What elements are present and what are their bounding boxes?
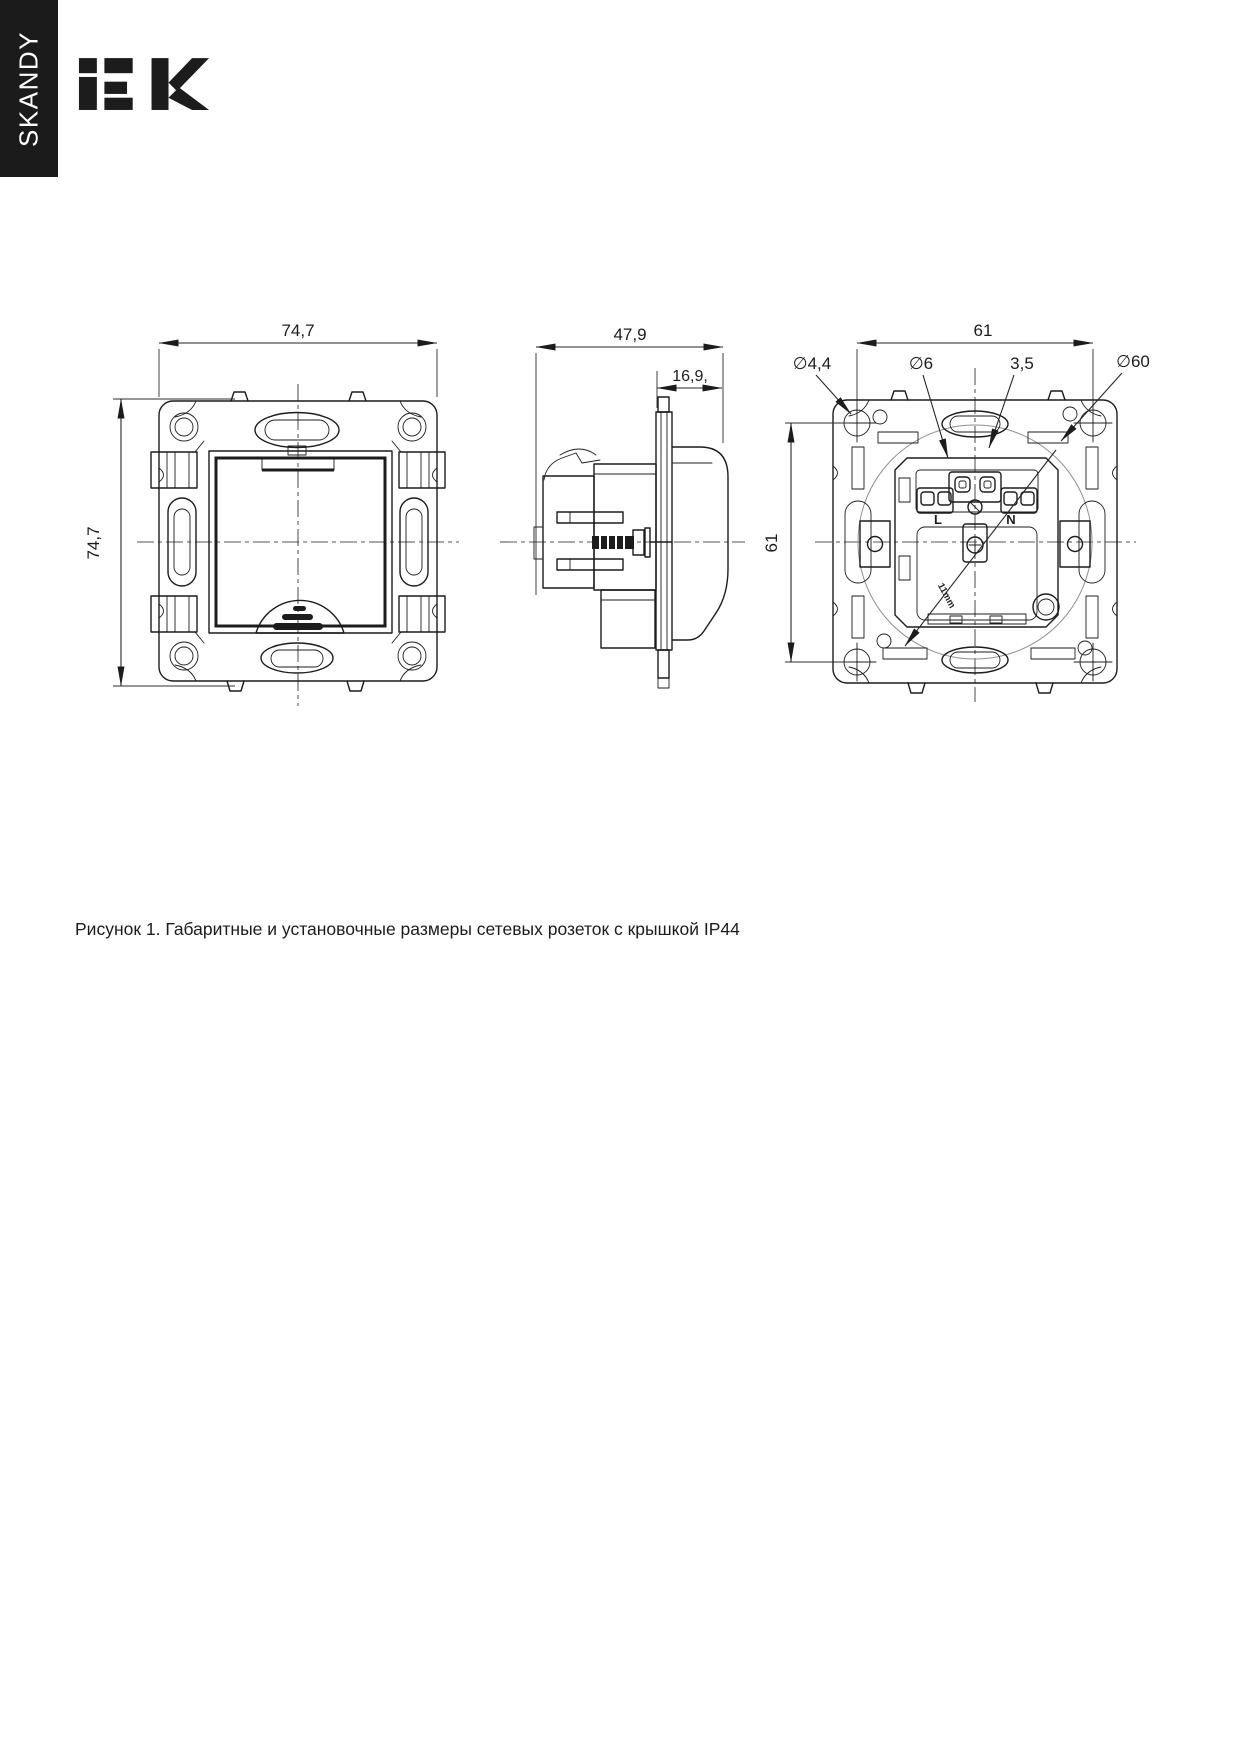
slot-width-label: 3,5 bbox=[1010, 354, 1034, 373]
side-depth-value: 47,9 bbox=[613, 325, 646, 344]
side-front-depth-value: 16,9, bbox=[672, 368, 708, 385]
screw-hole-dia-label: ∅4,4 bbox=[793, 354, 831, 373]
front-bottom-slot bbox=[261, 643, 333, 673]
rear-height-dimension: 61 bbox=[762, 423, 849, 662]
side-front-depth-dimension: 16,9, bbox=[657, 368, 722, 408]
side-screw bbox=[592, 528, 672, 557]
front-top-slot bbox=[255, 413, 339, 456]
front-view-drawing: 74,7 74,7 bbox=[84, 321, 459, 706]
front-width-value: 74,7 bbox=[281, 321, 314, 340]
terminal-live-label: L bbox=[934, 512, 942, 527]
rear-mechanism: L N 11mm bbox=[895, 450, 1059, 646]
dimension-drawing: 74,7 74,7 bbox=[0, 0, 1239, 1746]
side-depth-dimension: 47,9 bbox=[536, 325, 723, 595]
rear-width-value: 61 bbox=[974, 321, 993, 340]
box-dia-label: ∅60 bbox=[1116, 352, 1150, 371]
figure-caption: Рисунок 1. Габаритные и установочные раз… bbox=[75, 919, 975, 940]
rear-leader-dimensions: ∅4,4 ∅6 3,5 ∅60 bbox=[793, 352, 1150, 458]
front-height-value: 74,7 bbox=[84, 526, 103, 559]
document-page: SKANDY bbox=[0, 0, 1239, 1746]
hole-dia-label: ∅6 bbox=[909, 354, 933, 373]
rear-view-drawing: L N 11mm 61 bbox=[762, 321, 1150, 702]
side-view-drawing: 47,9 16,9, bbox=[500, 325, 745, 688]
terminal-neutral-label: N bbox=[1006, 512, 1015, 527]
rear-height-value: 61 bbox=[762, 534, 781, 553]
strip-note-label: 11mm bbox=[935, 581, 957, 610]
